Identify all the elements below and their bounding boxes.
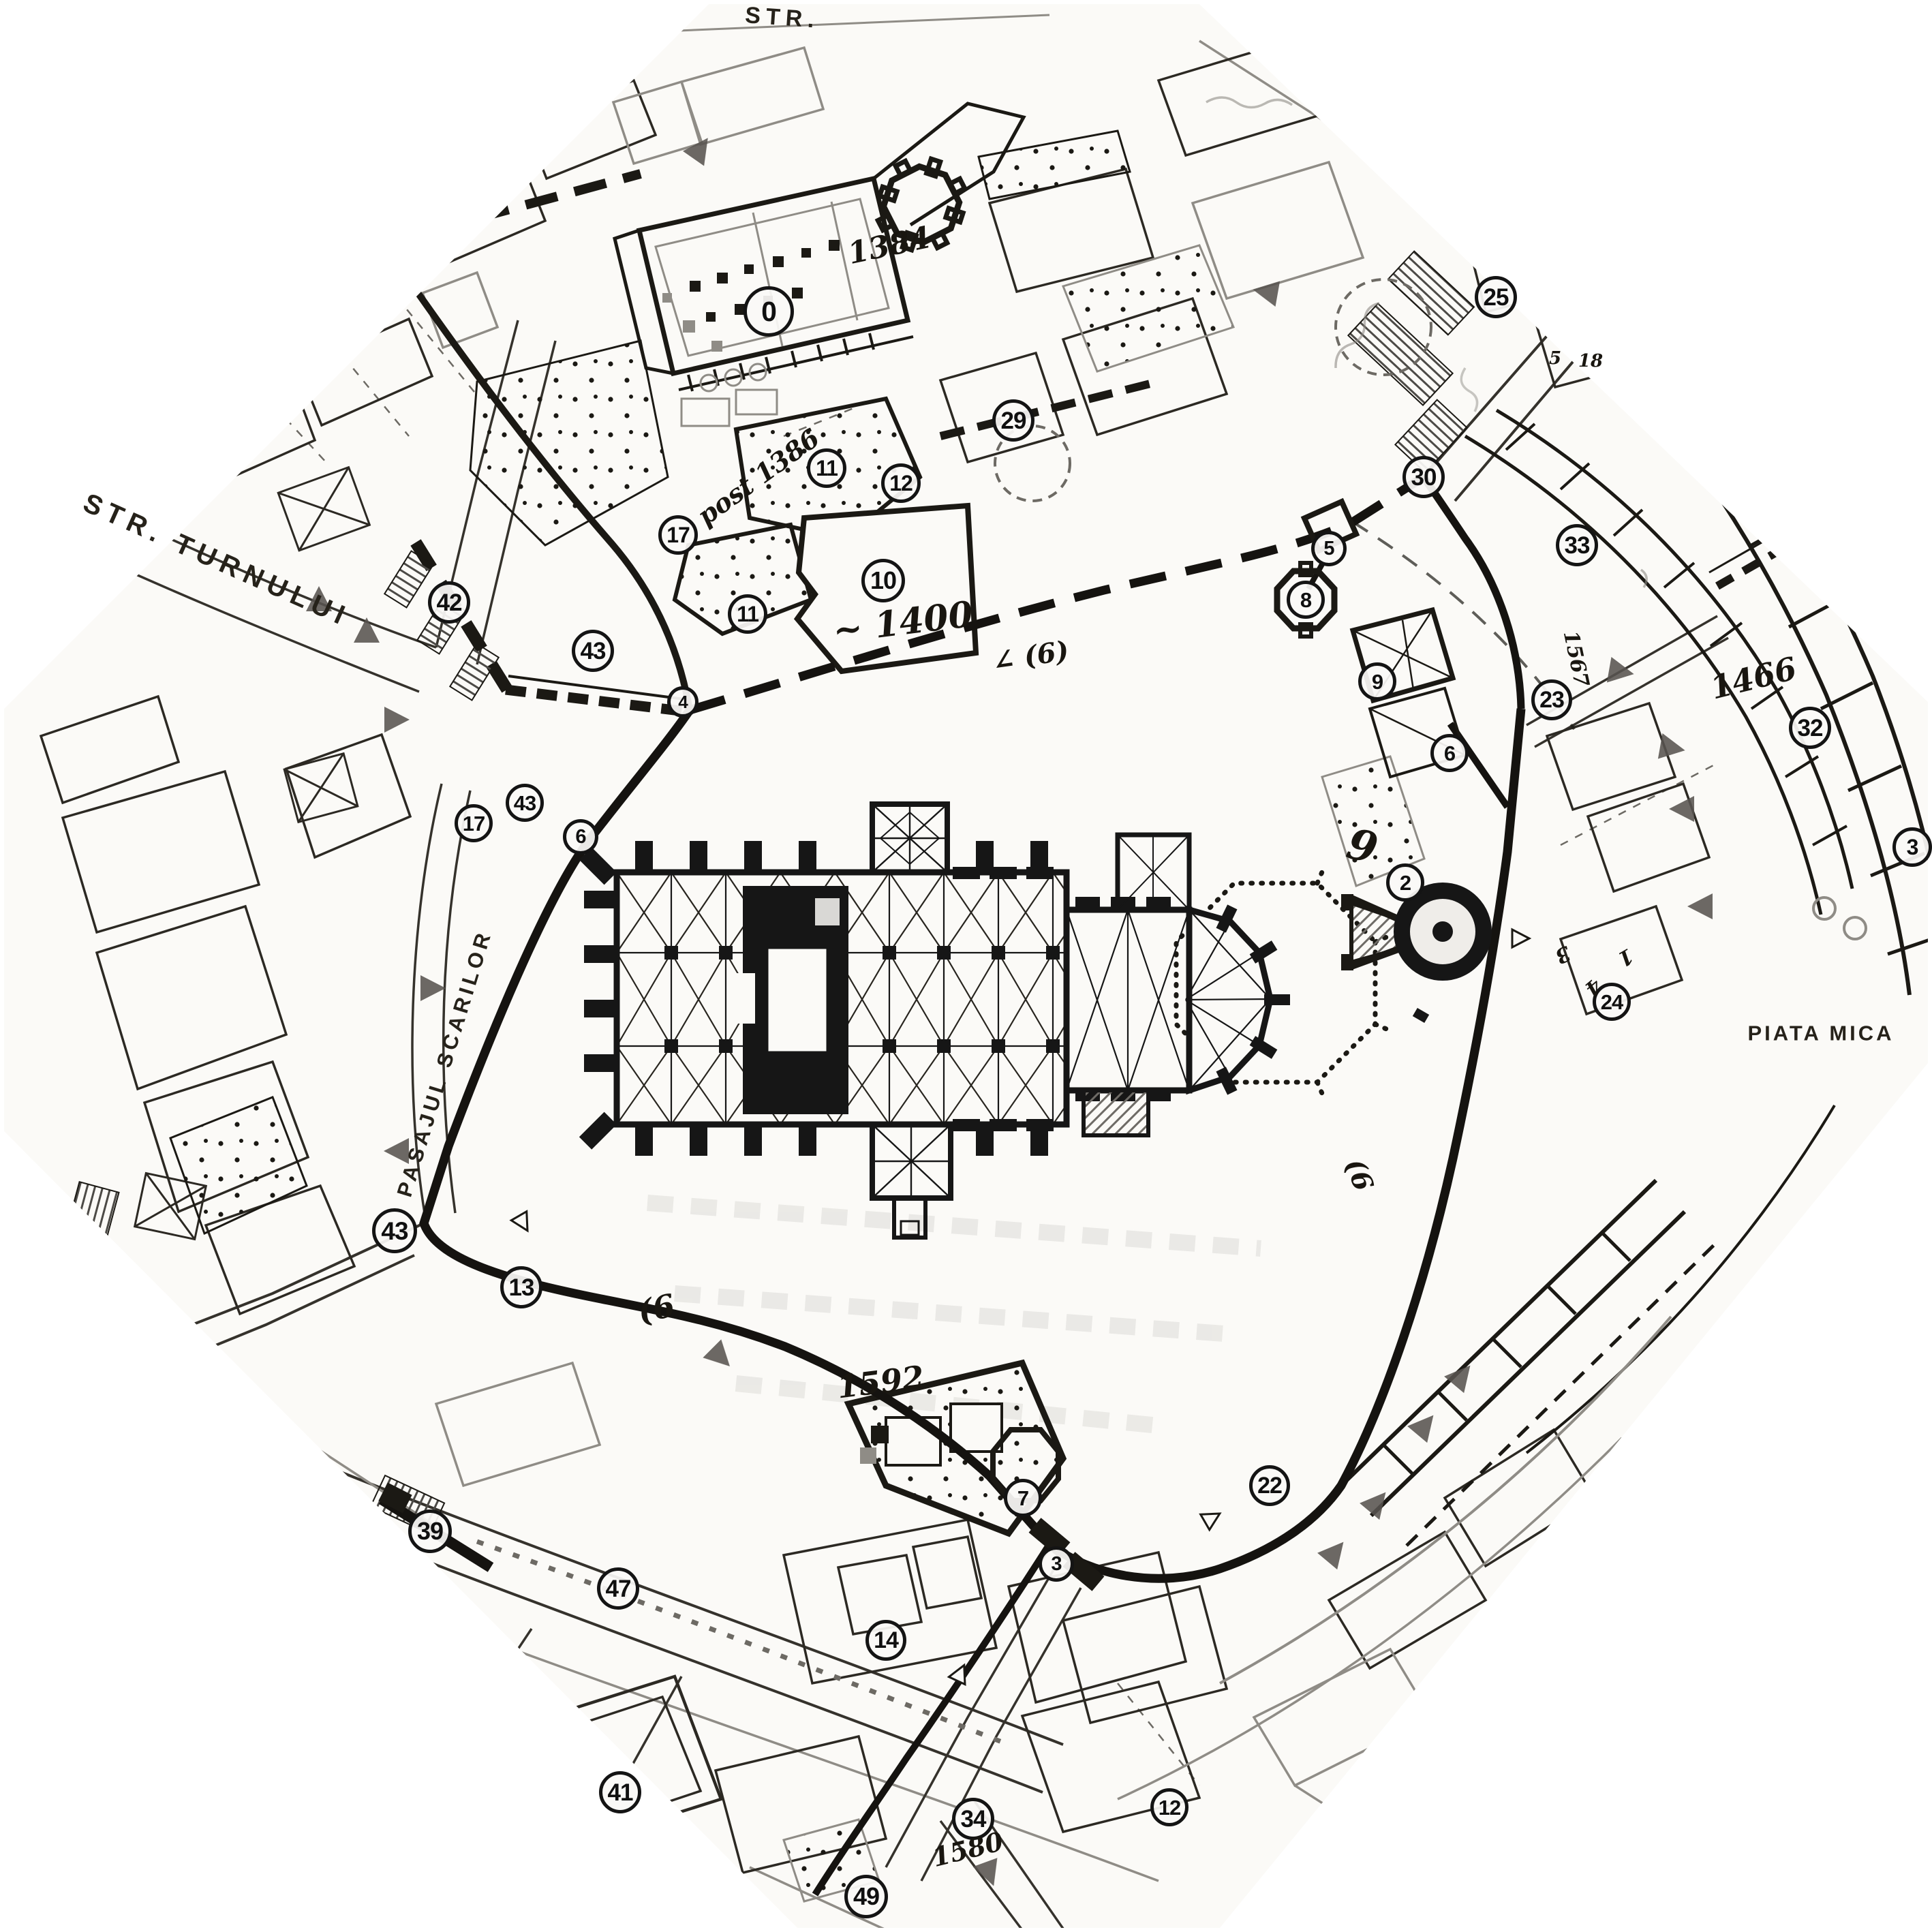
historic-town-plan-scan: 0252930331112171011424358923643231743622… — [0, 0, 1932, 1932]
numbered-site-marker: 0 — [743, 286, 794, 337]
marker-number: 10 — [870, 568, 896, 593]
marker-number: 41 — [608, 1781, 633, 1805]
marker-number: 0 — [761, 298, 776, 326]
numbered-site-marker: 3 — [1039, 1546, 1074, 1582]
numbered-site-marker: 29 — [992, 399, 1034, 442]
numbered-site-marker: 9 — [1358, 662, 1396, 701]
numbered-site-marker: 49 — [844, 1875, 888, 1918]
marker-number: 8 — [1300, 589, 1311, 611]
marker-number: 33 — [1565, 534, 1590, 557]
handwritten-annotation: 3 — [1552, 942, 1574, 966]
handwritten-annotation: ~ 1400 — [831, 597, 975, 649]
numbered-site-marker: 47 — [597, 1567, 639, 1610]
street-label: STR. — [744, 3, 821, 32]
numbered-site-marker: 12 — [1150, 1788, 1189, 1826]
street-label: PASAJUL SCARILOR — [393, 927, 495, 1199]
handwritten-annotation: 1567 — [1560, 629, 1592, 689]
marker-number: 6 — [575, 827, 585, 847]
street-label: PIATA MICA — [1747, 1023, 1894, 1044]
marker-number: 17 — [463, 813, 485, 834]
marker-number: 11 — [737, 603, 758, 625]
marker-number: 34 — [961, 1807, 986, 1831]
marker-number: 39 — [417, 1519, 443, 1544]
numbered-site-marker: 22 — [1249, 1465, 1290, 1506]
numbered-site-marker: 23 — [1531, 679, 1572, 720]
marker-number: 32 — [1798, 716, 1823, 740]
marker-number: 11 — [816, 457, 838, 479]
marker-number: 30 — [1411, 465, 1437, 489]
marker-number: 22 — [1257, 1474, 1282, 1497]
handwritten-annotation: (6 — [635, 1289, 677, 1328]
marker-number: 12 — [1159, 1797, 1180, 1818]
numbered-site-marker: 8 — [1287, 581, 1325, 619]
marker-number: 23 — [1539, 688, 1564, 711]
marker-number: 17 — [666, 524, 690, 546]
numbered-site-marker: 10 — [861, 559, 905, 602]
marker-number: 6 — [1444, 743, 1455, 764]
numbered-site-marker: 17 — [658, 515, 698, 555]
marker-number: 4 — [678, 693, 687, 711]
handwritten-annotation: 18 — [1578, 352, 1603, 370]
numbered-site-marker: 4 — [667, 686, 699, 718]
marker-number: 2 — [1400, 872, 1411, 893]
handwritten-annotation: 1 — [1614, 945, 1636, 969]
handwritten-annotation: 1592 — [835, 1361, 926, 1402]
marker-number: 3 — [1051, 1554, 1061, 1574]
marker-number: 12 — [889, 472, 913, 494]
marker-number: 14 — [874, 1629, 898, 1652]
marker-number: 24 — [1601, 992, 1623, 1013]
handwritten-annotation: 5 — [1549, 350, 1561, 367]
map-label-layer: 0252930331112171011424358923643231743622… — [0, 0, 1932, 1932]
handwritten-annotation: 1466 — [1707, 652, 1799, 704]
numbered-site-marker: 6 — [563, 819, 598, 855]
handwritten-annotation: (6 — [1340, 1155, 1377, 1195]
numbered-site-marker: 41 — [599, 1771, 641, 1813]
numbered-site-marker: 30 — [1402, 456, 1445, 498]
marker-number: 43 — [381, 1218, 408, 1244]
marker-number: 9 — [1372, 671, 1383, 692]
handwritten-annotation: post 1386 — [693, 425, 824, 530]
marker-number: 3 — [1907, 836, 1918, 858]
numbered-site-marker: 6 — [1430, 734, 1469, 772]
numbered-site-marker: 17 — [455, 804, 493, 842]
numbered-site-marker: 43 — [572, 630, 614, 672]
marker-number: 42 — [437, 591, 462, 615]
handwritten-annotation: 9 — [1343, 823, 1382, 871]
handwritten-annotation: 1384 — [846, 223, 934, 270]
marker-number: 25 — [1484, 286, 1509, 309]
numbered-site-marker: 11 — [728, 594, 767, 634]
marker-number: 43 — [581, 639, 606, 663]
handwritten-annotation: ∠ (6) — [990, 637, 1071, 675]
numbered-site-marker: 42 — [428, 581, 470, 624]
numbered-site-marker: 5 — [1311, 531, 1347, 566]
marker-number: 29 — [1001, 409, 1026, 433]
marker-number: 47 — [606, 1577, 631, 1601]
numbered-site-marker: 3 — [1892, 827, 1932, 867]
numbered-site-marker: 33 — [1556, 524, 1598, 566]
numbered-site-marker: 12 — [881, 463, 921, 503]
marker-number: 5 — [1323, 539, 1334, 559]
marker-number: 13 — [509, 1276, 534, 1300]
numbered-site-marker: 32 — [1789, 707, 1831, 749]
numbered-site-marker: 13 — [500, 1266, 542, 1308]
numbered-site-marker: 2 — [1386, 863, 1424, 902]
marker-number: 49 — [853, 1884, 879, 1909]
handwritten-annotation: 1580 — [930, 1828, 1006, 1871]
numbered-site-marker: 7 — [1004, 1479, 1042, 1517]
street-label: STR. TURNULUI — [79, 489, 354, 632]
numbered-site-marker: 25 — [1475, 276, 1517, 318]
numbered-site-marker: 39 — [408, 1509, 452, 1553]
marker-number: 7 — [1017, 1488, 1028, 1509]
numbered-site-marker: 43 — [372, 1208, 417, 1253]
numbered-site-marker: 43 — [506, 784, 544, 822]
handwritten-annotation: 4 — [1580, 975, 1604, 999]
numbered-site-marker: 14 — [865, 1620, 906, 1661]
marker-number: 43 — [514, 793, 536, 814]
